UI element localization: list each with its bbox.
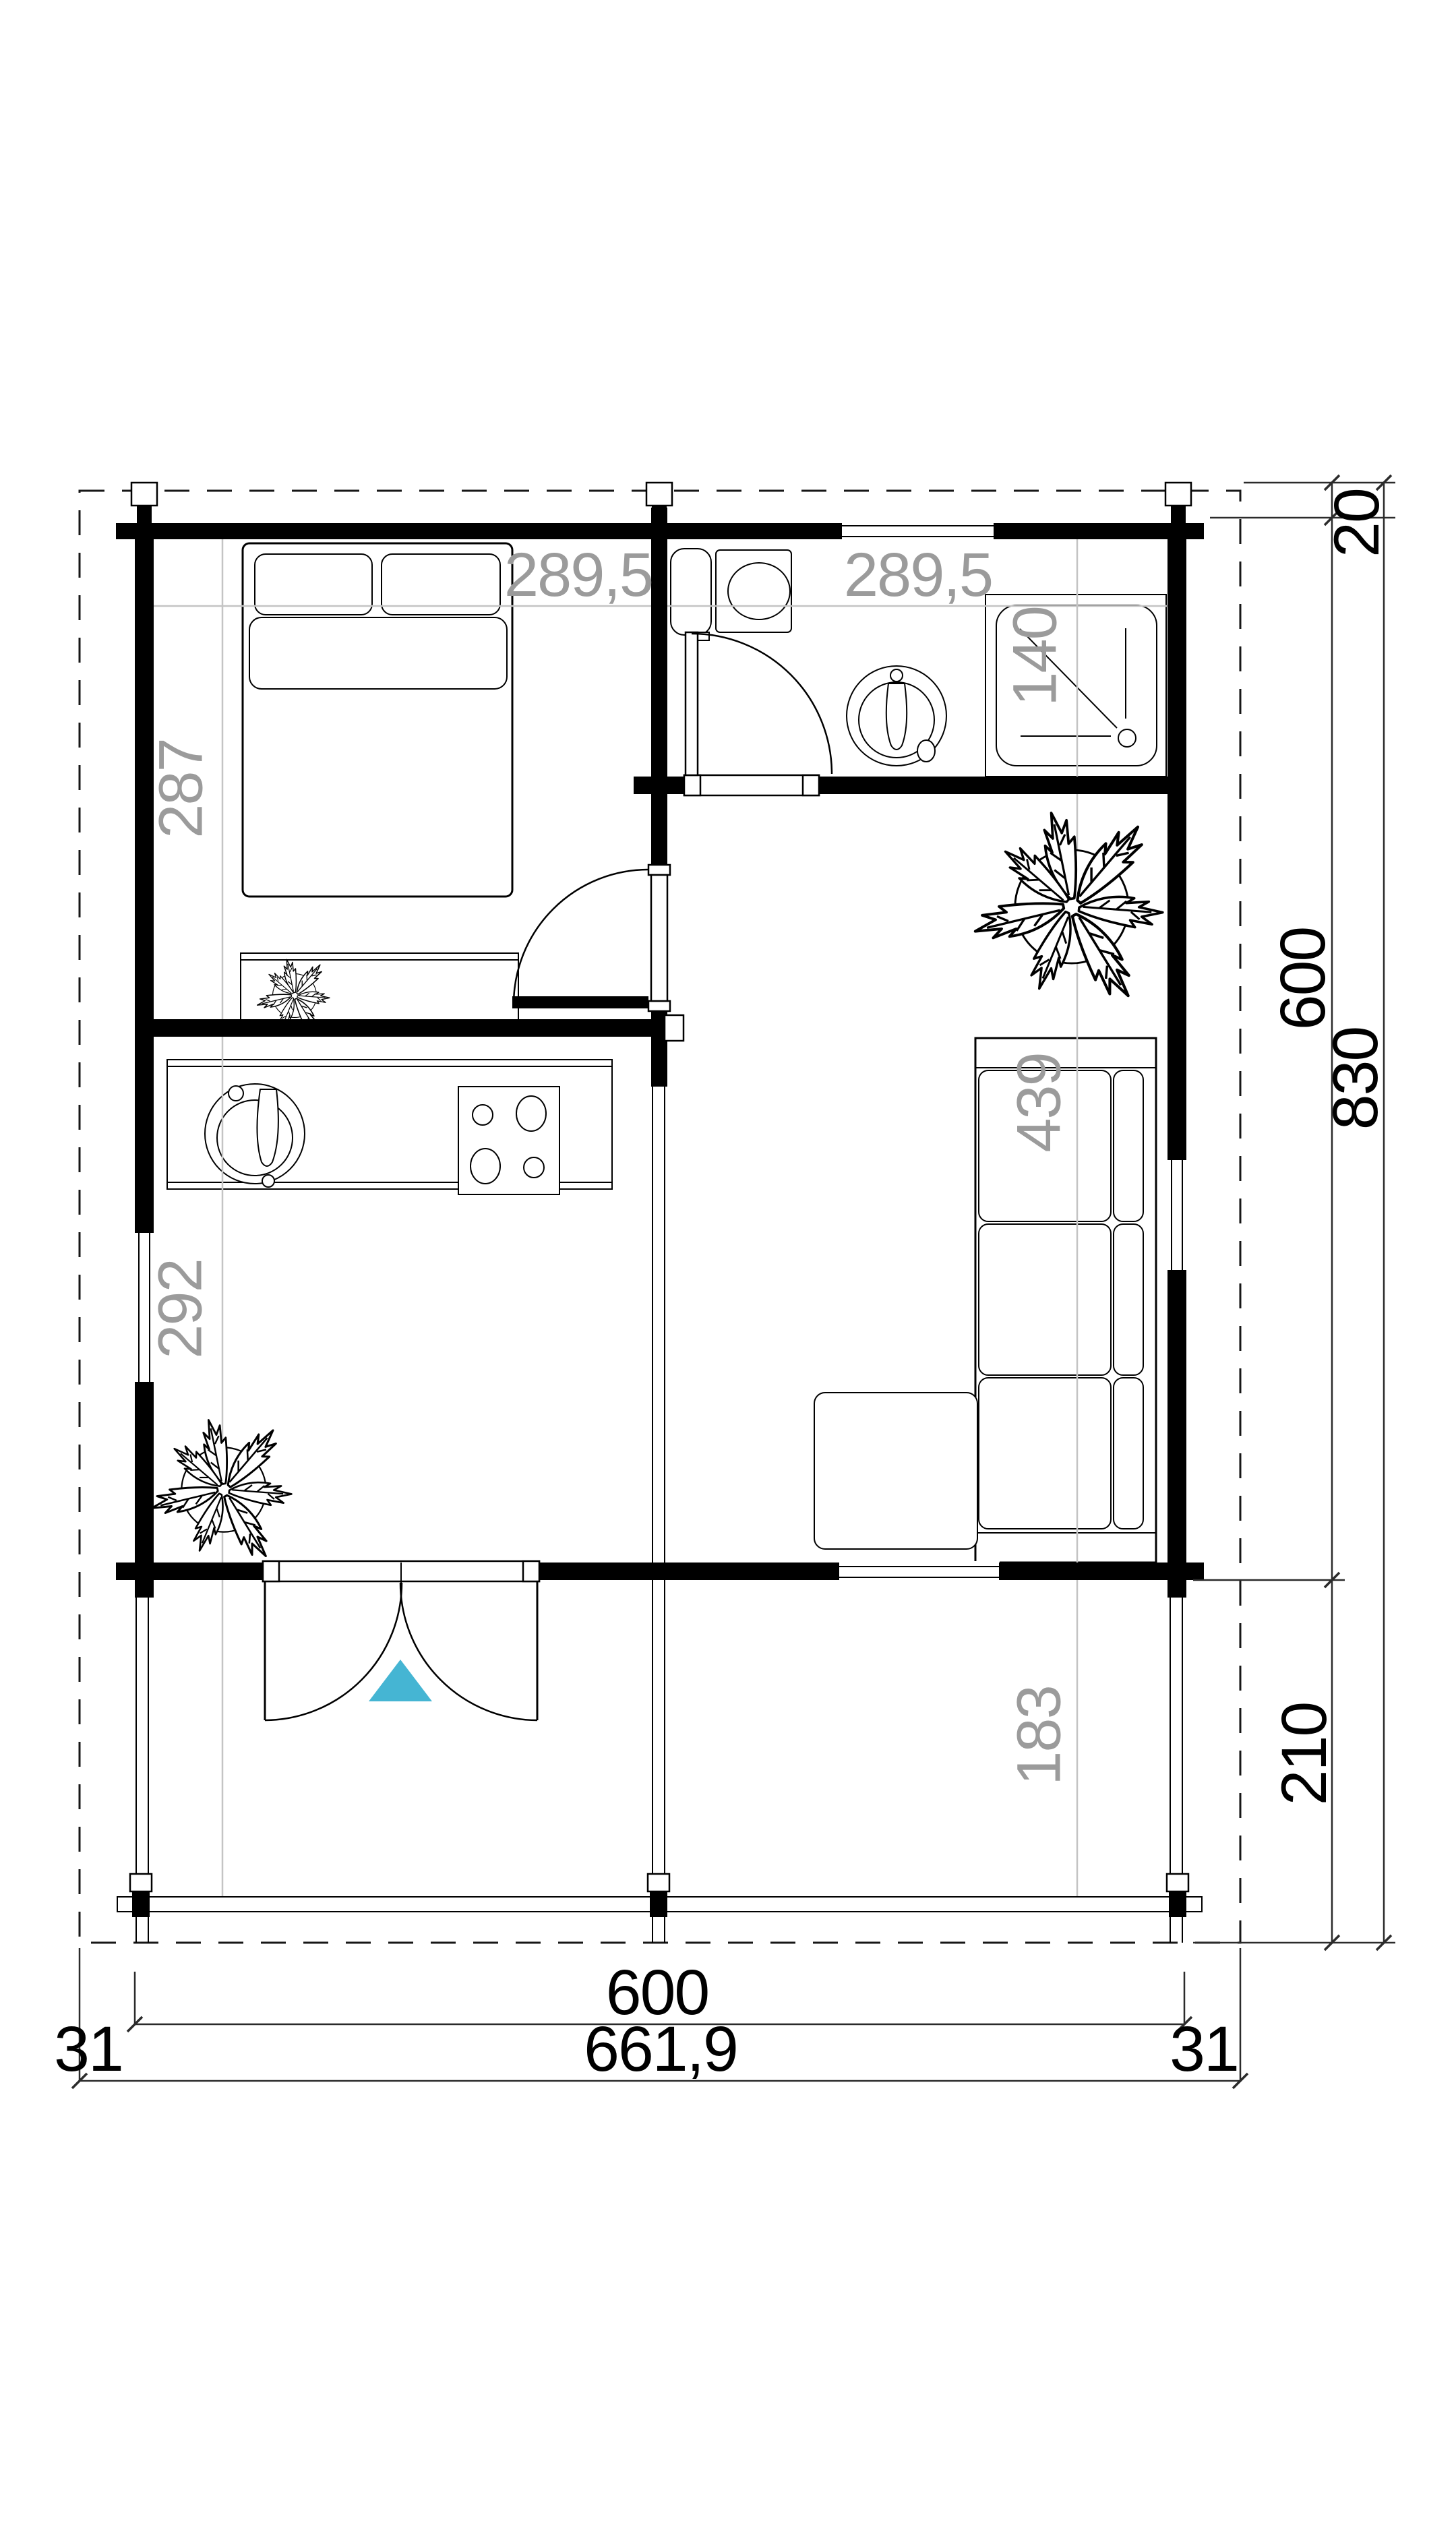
wall-west-lower <box>135 1383 154 1598</box>
burner <box>473 1105 493 1125</box>
shower-drain <box>1118 729 1136 747</box>
window-bathroom-north <box>841 522 994 541</box>
basin-faucet <box>886 684 907 750</box>
window-living-east <box>1166 1159 1188 1271</box>
divider-end-cap <box>665 1015 684 1041</box>
floor-plan-drawing: 289,5 289,5 287 140 292 439 183 20 600 8… <box>0 0 1456 2548</box>
drain-hole <box>262 1175 274 1187</box>
wall-bath-south-b <box>819 777 1167 794</box>
washbasin <box>847 666 946 766</box>
bedroom-depth-label: 287 <box>146 739 215 839</box>
terrace-depth-label: 183 <box>1004 1686 1073 1786</box>
backrest-cushion <box>1114 1378 1143 1529</box>
bathroom-door-leaf <box>686 632 698 775</box>
toilet <box>671 549 791 640</box>
wall-bath-south-a <box>634 777 684 794</box>
seat-cushion <box>979 1224 1111 1375</box>
wall-divider <box>154 1019 682 1037</box>
double-bed <box>243 543 512 897</box>
shower-dim-label: 140 <box>1000 607 1069 706</box>
terrace-depth-dim-label: 210 <box>1269 1703 1340 1806</box>
blanket <box>249 617 507 689</box>
wall-partition-upper <box>651 508 667 865</box>
wall-east-upper <box>1167 523 1186 1159</box>
backrest-cushion <box>1114 1070 1143 1221</box>
bedroom <box>241 543 518 1035</box>
page-background <box>0 0 1456 2548</box>
bedroom-width-label: 289,5 <box>504 541 653 609</box>
bedroom-door-leaf <box>651 875 667 1001</box>
building-depth-label: 600 <box>1267 928 1339 1031</box>
terrace-post <box>1169 1891 1186 1917</box>
chaise-ottoman <box>814 1393 977 1549</box>
terrace-post <box>650 1891 667 1917</box>
roof-overhang-label: 20 <box>1321 489 1393 557</box>
total-width-label: 661,9 <box>584 2013 737 2085</box>
terrace-post <box>132 1891 150 1917</box>
seat-cushion <box>979 1378 1111 1529</box>
burner <box>516 1096 546 1131</box>
toilet-tank <box>671 549 711 635</box>
overhang-left-label: 31 <box>54 2013 123 2085</box>
total-depth-label: 830 <box>1320 1027 1391 1130</box>
bedroom-door-leaf-open <box>512 996 648 1008</box>
bathroom-width-label: 289,5 <box>844 541 992 609</box>
stove <box>458 1087 559 1194</box>
overhang-right-label: 31 <box>1170 2013 1238 2085</box>
kitchen <box>167 1060 612 1194</box>
window-living-south <box>839 1561 1000 1581</box>
faucet-hole <box>229 1086 243 1101</box>
wall-east-lower <box>1167 1271 1186 1598</box>
kitchen-depth-label: 292 <box>146 1259 214 1359</box>
burner <box>524 1157 544 1178</box>
backrest-cushion <box>1114 1224 1143 1375</box>
wall-west-upper <box>135 523 154 1232</box>
burner <box>471 1149 500 1184</box>
floorplan-page: 289,5 289,5 287 140 292 439 183 20 600 8… <box>0 0 1456 2548</box>
faucet-handle <box>257 1089 278 1166</box>
sofa-length-label: 439 <box>1004 1053 1073 1153</box>
toilet-bowl <box>728 563 790 619</box>
